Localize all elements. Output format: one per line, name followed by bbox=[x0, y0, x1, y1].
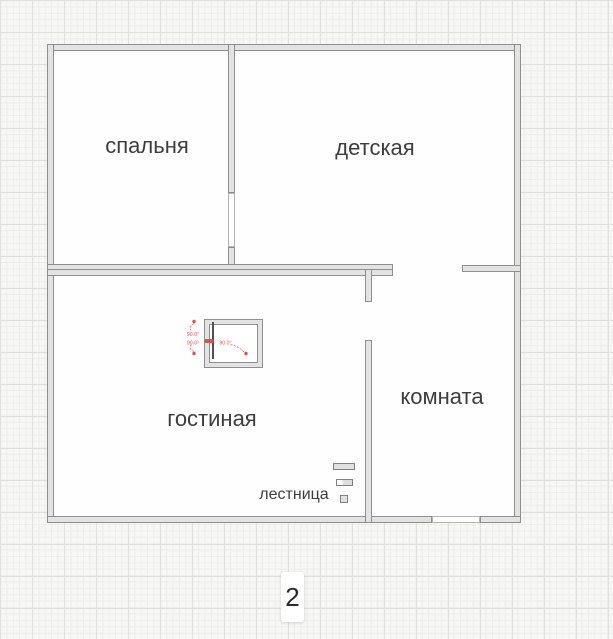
room-label-bedroom[interactable]: спальня bbox=[105, 133, 189, 159]
door-opening-bedroom[interactable] bbox=[228, 193, 235, 247]
closet-object[interactable] bbox=[204, 319, 263, 368]
wall-exterior-top[interactable] bbox=[47, 44, 521, 51]
stairs-label[interactable]: лестница bbox=[259, 486, 328, 504]
wall-divider-bedroom-upper[interactable] bbox=[228, 44, 235, 193]
wall-horizontal-right[interactable] bbox=[462, 265, 521, 272]
grid-canvas[interactable]: спальня детская гостиная комната лестниц… bbox=[0, 0, 613, 639]
stairs-object[interactable] bbox=[330, 460, 360, 506]
closet-interior bbox=[209, 324, 258, 363]
room-label-living[interactable]: гостиная bbox=[167, 406, 256, 432]
closet-inner-wall[interactable] bbox=[212, 322, 214, 359]
room-label-kids[interactable]: детская bbox=[335, 135, 414, 161]
stair-step bbox=[333, 463, 355, 470]
wall-exterior-bottom-left[interactable] bbox=[47, 516, 432, 523]
wall-room-main[interactable] bbox=[365, 340, 372, 523]
wall-exterior-bottom-right[interactable] bbox=[480, 516, 521, 523]
room-label-room[interactable]: комната bbox=[400, 384, 483, 410]
stair-step bbox=[336, 479, 353, 486]
wall-horizontal-lower[interactable] bbox=[47, 269, 393, 276]
wall-divider-bedroom-lower[interactable] bbox=[228, 247, 235, 265]
floor-plan: спальня детская гостиная комната лестниц… bbox=[0, 0, 613, 639]
floor-selector-button[interactable]: 2 bbox=[281, 572, 304, 622]
wall-exterior-right[interactable] bbox=[514, 44, 521, 523]
wall-room-stub[interactable] bbox=[365, 269, 372, 302]
flat-interior bbox=[50, 47, 520, 520]
wall-exterior-left[interactable] bbox=[47, 44, 54, 523]
stair-step bbox=[340, 495, 348, 503]
door-opening-exterior-bottom[interactable] bbox=[432, 516, 480, 523]
